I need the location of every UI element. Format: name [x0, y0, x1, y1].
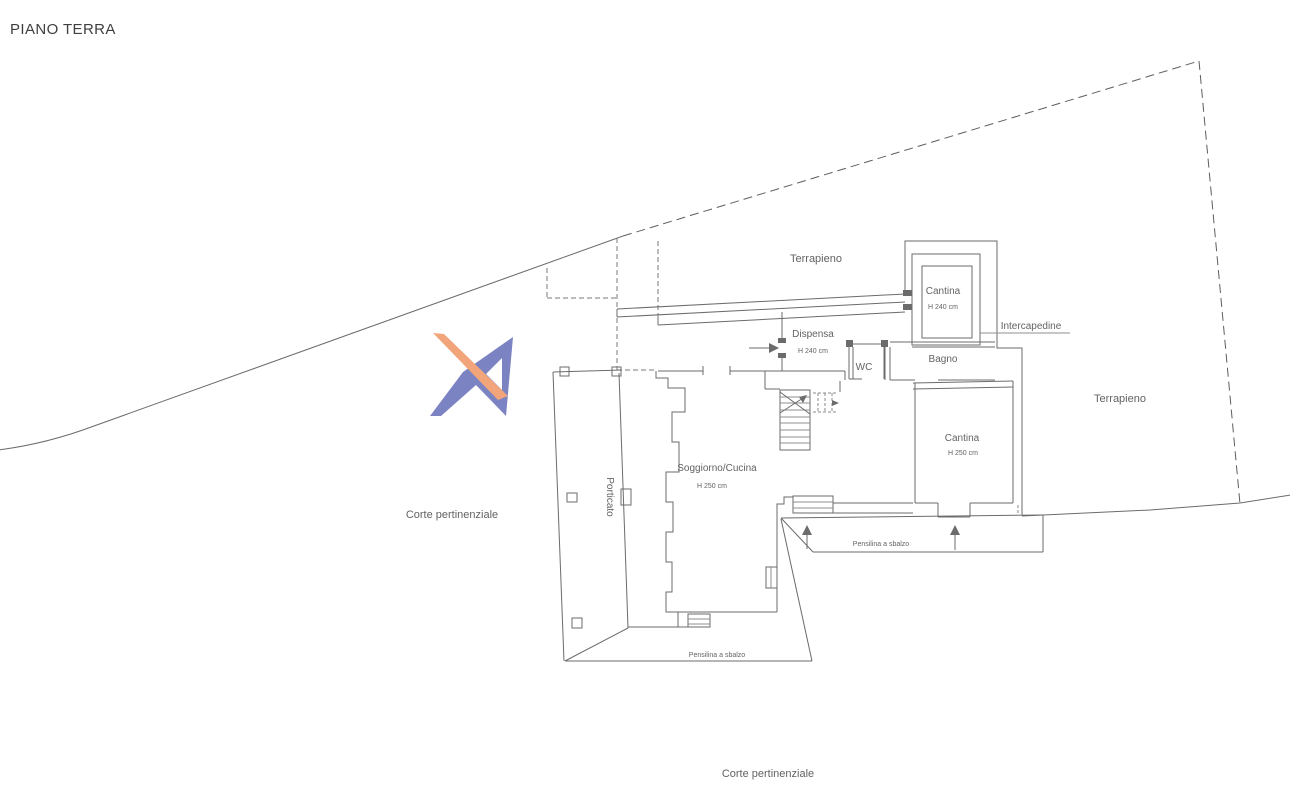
room-label-dispensa: Dispensa: [792, 329, 834, 340]
bagno-wc-walls: [846, 340, 995, 380]
cantina-lower-walls: [913, 381, 1018, 517]
plan-labels: PIANO TERRA Terrapieno Terrapieno Corte …: [10, 21, 1146, 780]
logo-blue-shape: [430, 337, 513, 416]
area-label-corte-left: Corte pertinenziale: [406, 509, 498, 521]
dispensa-walls: [658, 312, 845, 380]
floor-plan-page: PIANO TERRA Terrapieno Terrapieno Corte …: [0, 0, 1290, 812]
room-label-soggiorno: Soggiorno/Cucina: [677, 463, 757, 474]
area-label-porticato: Porticato: [604, 477, 615, 517]
area-label-corte-bottom: Corte pertinenziale: [722, 768, 814, 780]
pensilina-right-outline: [781, 515, 1043, 552]
porticato-walls: [553, 367, 631, 661]
pensilina-bottom-outline: [565, 519, 812, 661]
canopy-label-pensilina-bottom: Pensilina a sbalzo: [689, 652, 746, 659]
canopy-label-pensilina-right: Pensilina a sbalzo: [853, 541, 910, 548]
entry-arrow: [749, 343, 779, 353]
staircase: [780, 390, 839, 450]
room-label-cantina-upper: Cantina: [926, 286, 961, 297]
room-label-intercapedine: Intercapedine: [1001, 321, 1062, 332]
room-label-bagno: Bagno: [929, 354, 958, 365]
page-title: PIANO TERRA: [10, 21, 116, 38]
room-height-soggiorno: H 250 cm: [697, 483, 727, 490]
room-height-cantina-lower: H 250 cm: [948, 450, 978, 457]
area-label-terrapieno-right: Terrapieno: [1094, 393, 1146, 405]
area-label-terrapieno-top: Terrapieno: [790, 253, 842, 265]
room-label-wc: WC: [856, 362, 873, 373]
room-height-cantina-upper: H 240 cm: [928, 304, 958, 311]
site-boundary: [0, 61, 1290, 516]
retaining-wall: [617, 294, 905, 325]
logo-watermark: [430, 333, 513, 416]
soggiorno-walls: [628, 371, 913, 627]
upper-block-walls: [903, 241, 1070, 515]
room-label-cantina-lower: Cantina: [945, 433, 980, 444]
logo-orange-shape: [433, 333, 508, 400]
floor-plan-drawing: PIANO TERRA Terrapieno Terrapieno Corte …: [0, 0, 1290, 812]
room-height-dispensa: H 240 cm: [798, 348, 828, 355]
